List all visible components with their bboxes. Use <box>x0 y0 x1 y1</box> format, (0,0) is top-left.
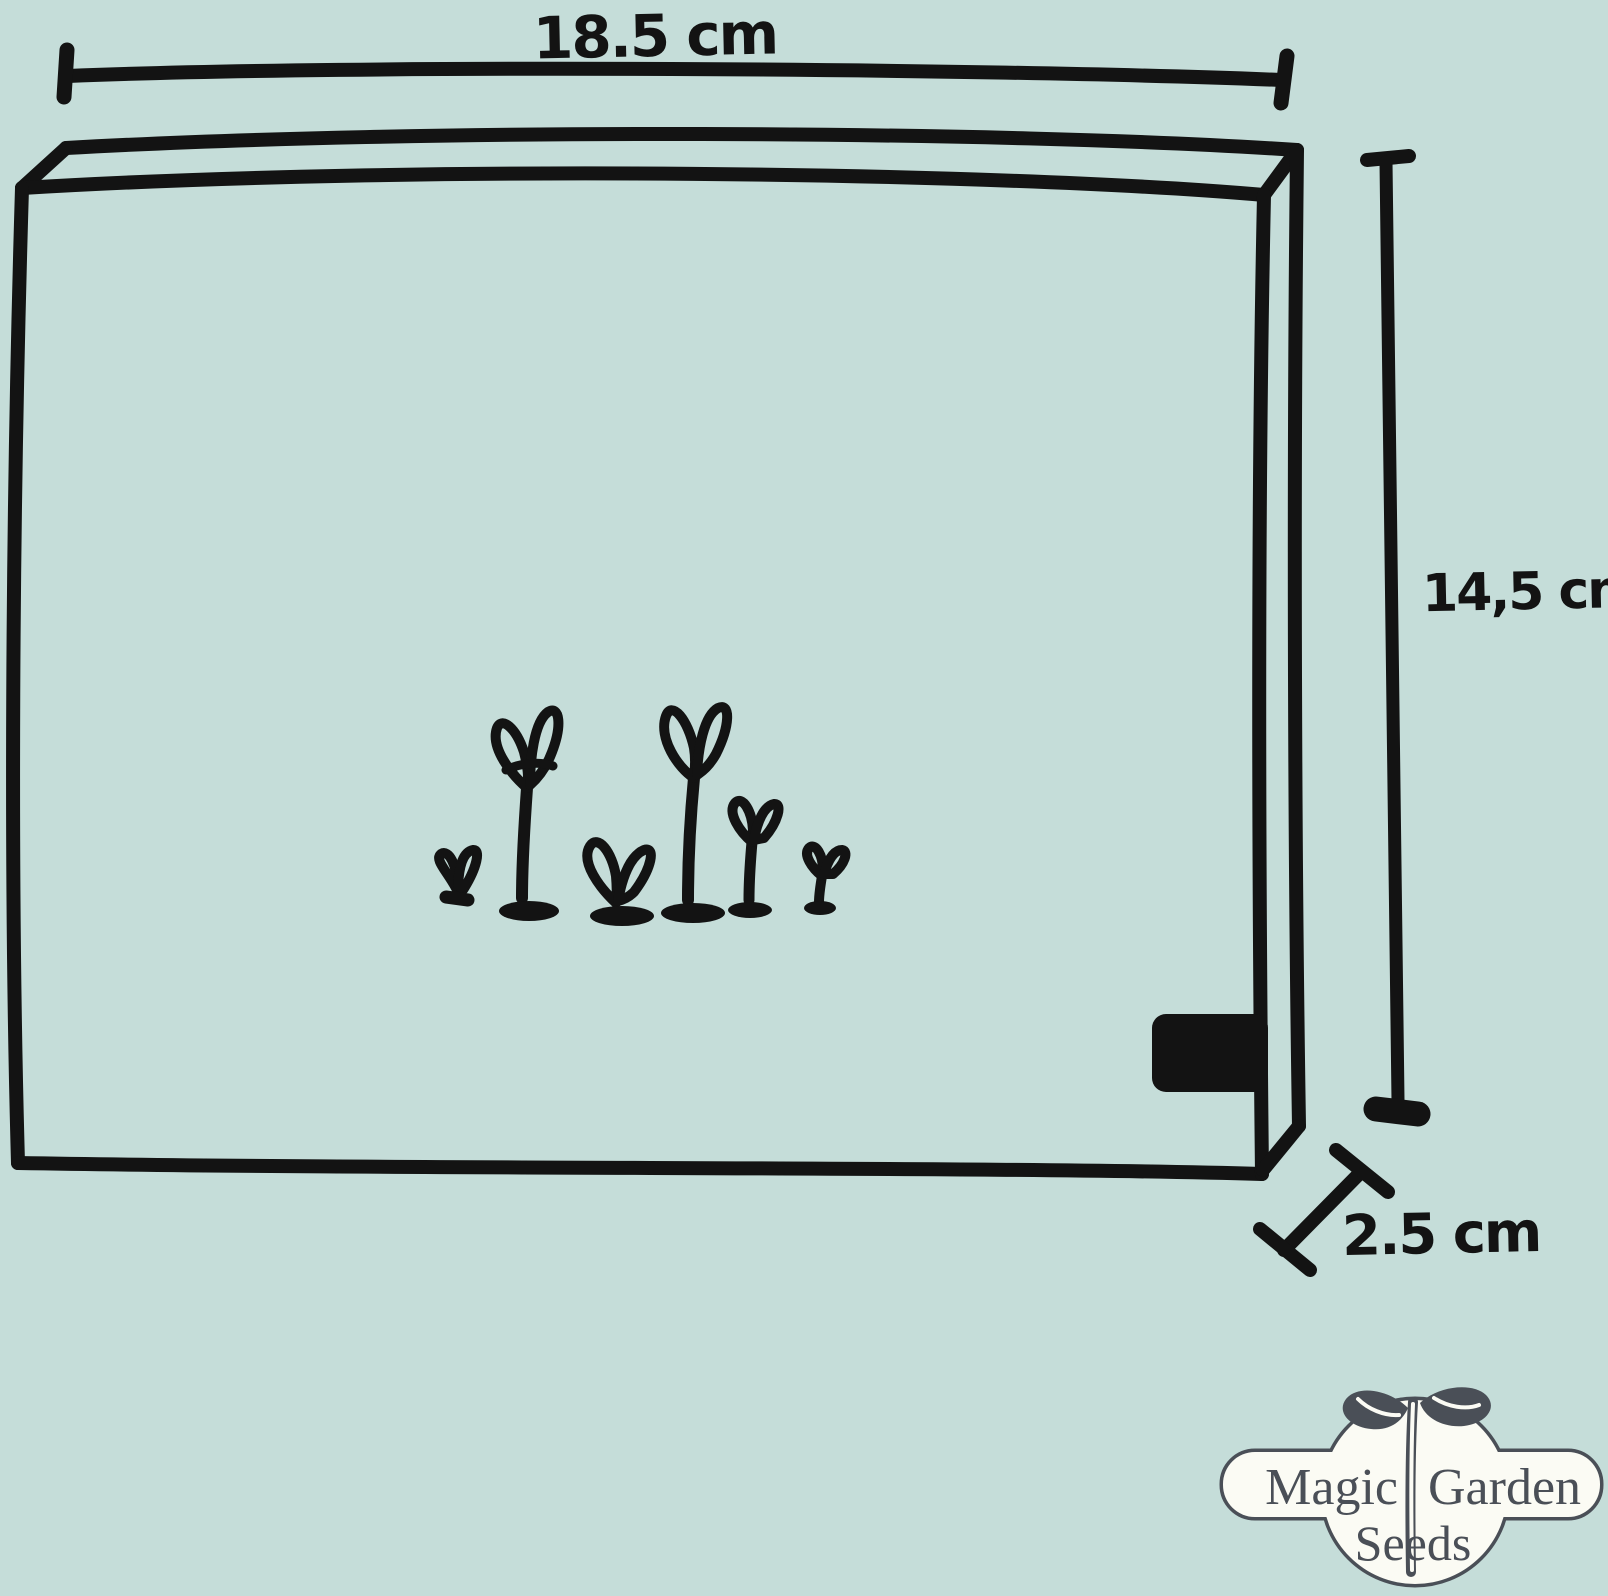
seed-box-outline <box>13 134 1299 1174</box>
box-front-top-edge <box>22 173 1264 195</box>
logo-word-seeds: Seeds <box>1355 1515 1472 1571</box>
height-dimension-label: 14,5 cm <box>1421 560 1608 625</box>
height-dimension-bottom-cap <box>1376 1109 1418 1114</box>
depth-dimension-label: 2.5 cm <box>1341 1200 1541 1269</box>
sprout-heart <box>587 842 654 926</box>
sprout-tiny <box>439 850 477 900</box>
width-dimension-right-cap <box>1281 56 1287 103</box>
box-side-tab <box>1152 1014 1268 1092</box>
box-left-edge <box>13 188 22 1163</box>
sprout-medium <box>728 801 779 918</box>
sprout-tallest <box>661 707 727 923</box>
sprout-small <box>804 847 845 915</box>
box-top-outer-edge <box>66 134 1297 150</box>
sprout-tall <box>496 711 559 921</box>
width-dimension-label: 18.5 cm <box>449 0 860 74</box>
brand-logo: Magic Garden Seeds <box>1200 1330 1608 1596</box>
width-dimension-left-cap <box>64 50 67 97</box>
box-bottom-edge <box>18 1163 1262 1174</box>
logo-word-garden: Garden <box>1428 1459 1581 1516</box>
magic-garden-seeds-logo: Magic Garden Seeds <box>1200 1330 1608 1596</box>
box-outer-right-edge <box>1295 150 1299 1126</box>
logo-word-magic: Magic <box>1265 1459 1398 1516</box>
sprouts-doodle <box>439 707 845 926</box>
height-dimension-line <box>1367 156 1418 1114</box>
sketch-canvas: 18.5 cm 14,5 cm 2.5 cm Magic Gard <box>0 0 1608 1596</box>
